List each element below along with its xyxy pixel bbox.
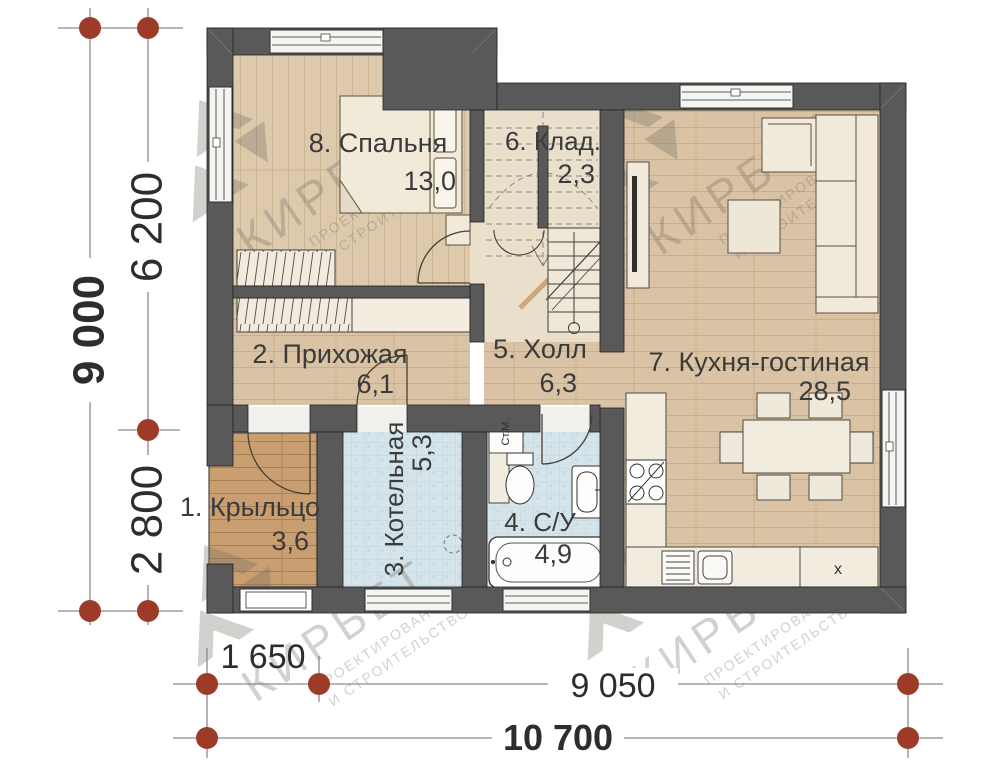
- floor-plan-page: КИРБЕТ ПРОЕКТИРОВАНИЕ И СТРОИТЕЛЬСТВО: [0, 0, 1000, 779]
- hall-kitchen-passage-floor: [600, 352, 624, 408]
- wall-hallway-south-a: [233, 405, 248, 432]
- dining-table: [743, 420, 850, 473]
- storage-name: 6. Клад.: [505, 126, 601, 156]
- wall-porch-post-bottom: [207, 564, 233, 613]
- hallway-name: 2. Прихожая: [252, 339, 407, 369]
- bathroom-sink: [572, 466, 602, 518]
- tv-icon: [632, 176, 637, 272]
- armchair: [762, 118, 817, 172]
- wall-right: [880, 83, 906, 613]
- window-boiler-bottom: [365, 589, 452, 611]
- bedroom-name: 8. Спальня: [309, 128, 448, 158]
- entry-door-threshold: [248, 407, 310, 432]
- dim-porch-width: 1 650: [220, 638, 305, 676]
- porch-steps-opening: [240, 589, 312, 611]
- hall-area: 6,3: [539, 368, 577, 398]
- chair: [850, 432, 873, 463]
- tv-unit: [627, 162, 649, 288]
- stove: [626, 460, 666, 504]
- dim-total-width: 10 700: [503, 717, 613, 758]
- boiler-name: 3. Котельная: [379, 422, 409, 577]
- wall-hall-kitchen: [600, 110, 624, 352]
- wall-hallway-south-b: [310, 405, 357, 432]
- hallway-wardrobe: [237, 298, 352, 332]
- wall-block-northeast-bedroom: [383, 28, 497, 110]
- chair: [757, 475, 790, 500]
- toilet: [506, 453, 534, 504]
- chair: [809, 475, 842, 500]
- hallway-area: 6,1: [356, 369, 394, 399]
- chair: [757, 393, 790, 418]
- dim-main-width: 9 050: [570, 667, 655, 705]
- window-bathroom-bottom: [503, 589, 590, 611]
- stairs-lower-flight: [546, 228, 600, 334]
- wall-hallway-hall: [470, 284, 484, 342]
- dim-total-height: 9 000: [65, 275, 114, 385]
- coffee-table: [728, 200, 780, 253]
- wall-bedroom-storage-upper: [470, 110, 484, 222]
- bedroom-wardrobe: [237, 250, 335, 286]
- wall-bathroom-kitchen: [600, 408, 624, 587]
- kitchen-living-name: 7. Кухня-гостиная: [648, 347, 869, 377]
- wall-bedroom-hallway: [233, 286, 470, 298]
- wall-left: [207, 28, 233, 405]
- window-bedroom-left: [209, 87, 232, 202]
- bathroom-shelf: [489, 453, 509, 503]
- dim-upper-height: 6 200: [123, 172, 172, 282]
- hall-name: 5. Холл: [493, 334, 587, 364]
- hallway-shelf: [352, 298, 470, 332]
- fridge-mark-label: x: [834, 561, 842, 578]
- kitchen-living-area: 28,5: [798, 376, 851, 406]
- storage-area: 2,3: [557, 159, 595, 189]
- dim-lower-height: 2 800: [123, 465, 172, 575]
- wall-porch-post-top: [207, 405, 233, 466]
- bathroom-door-threshold: [540, 407, 590, 432]
- chair: [720, 432, 743, 463]
- window-kitchen-right: [882, 390, 905, 507]
- floor-plan-drawing: КИРБЕТ ПРОЕКТИРОВАНИЕ И СТРОИТЕЛЬСТВО: [0, 0, 1000, 779]
- wall-boiler-bathroom: [462, 432, 487, 587]
- window-kitchen-top: [680, 85, 793, 108]
- bedroom-door-threshold: [470, 222, 484, 284]
- boiler-area: 5,3: [407, 434, 437, 472]
- nightstand-bottom: [446, 215, 470, 245]
- wall-hallway-south-c: [407, 405, 540, 432]
- washing-machine-label: Ст.М.: [500, 418, 512, 445]
- porch-area: 3,6: [271, 526, 309, 556]
- window-bedroom-top: [270, 30, 383, 53]
- porch-name: 1. Крыльцо: [180, 492, 320, 522]
- bathroom-area: 4,9: [534, 539, 572, 569]
- bedroom-area: 13,0: [403, 166, 456, 196]
- bathroom-name: 4. С/У: [504, 507, 576, 537]
- corner-sofa: [816, 115, 878, 313]
- wall-porch-boiler: [317, 432, 343, 587]
